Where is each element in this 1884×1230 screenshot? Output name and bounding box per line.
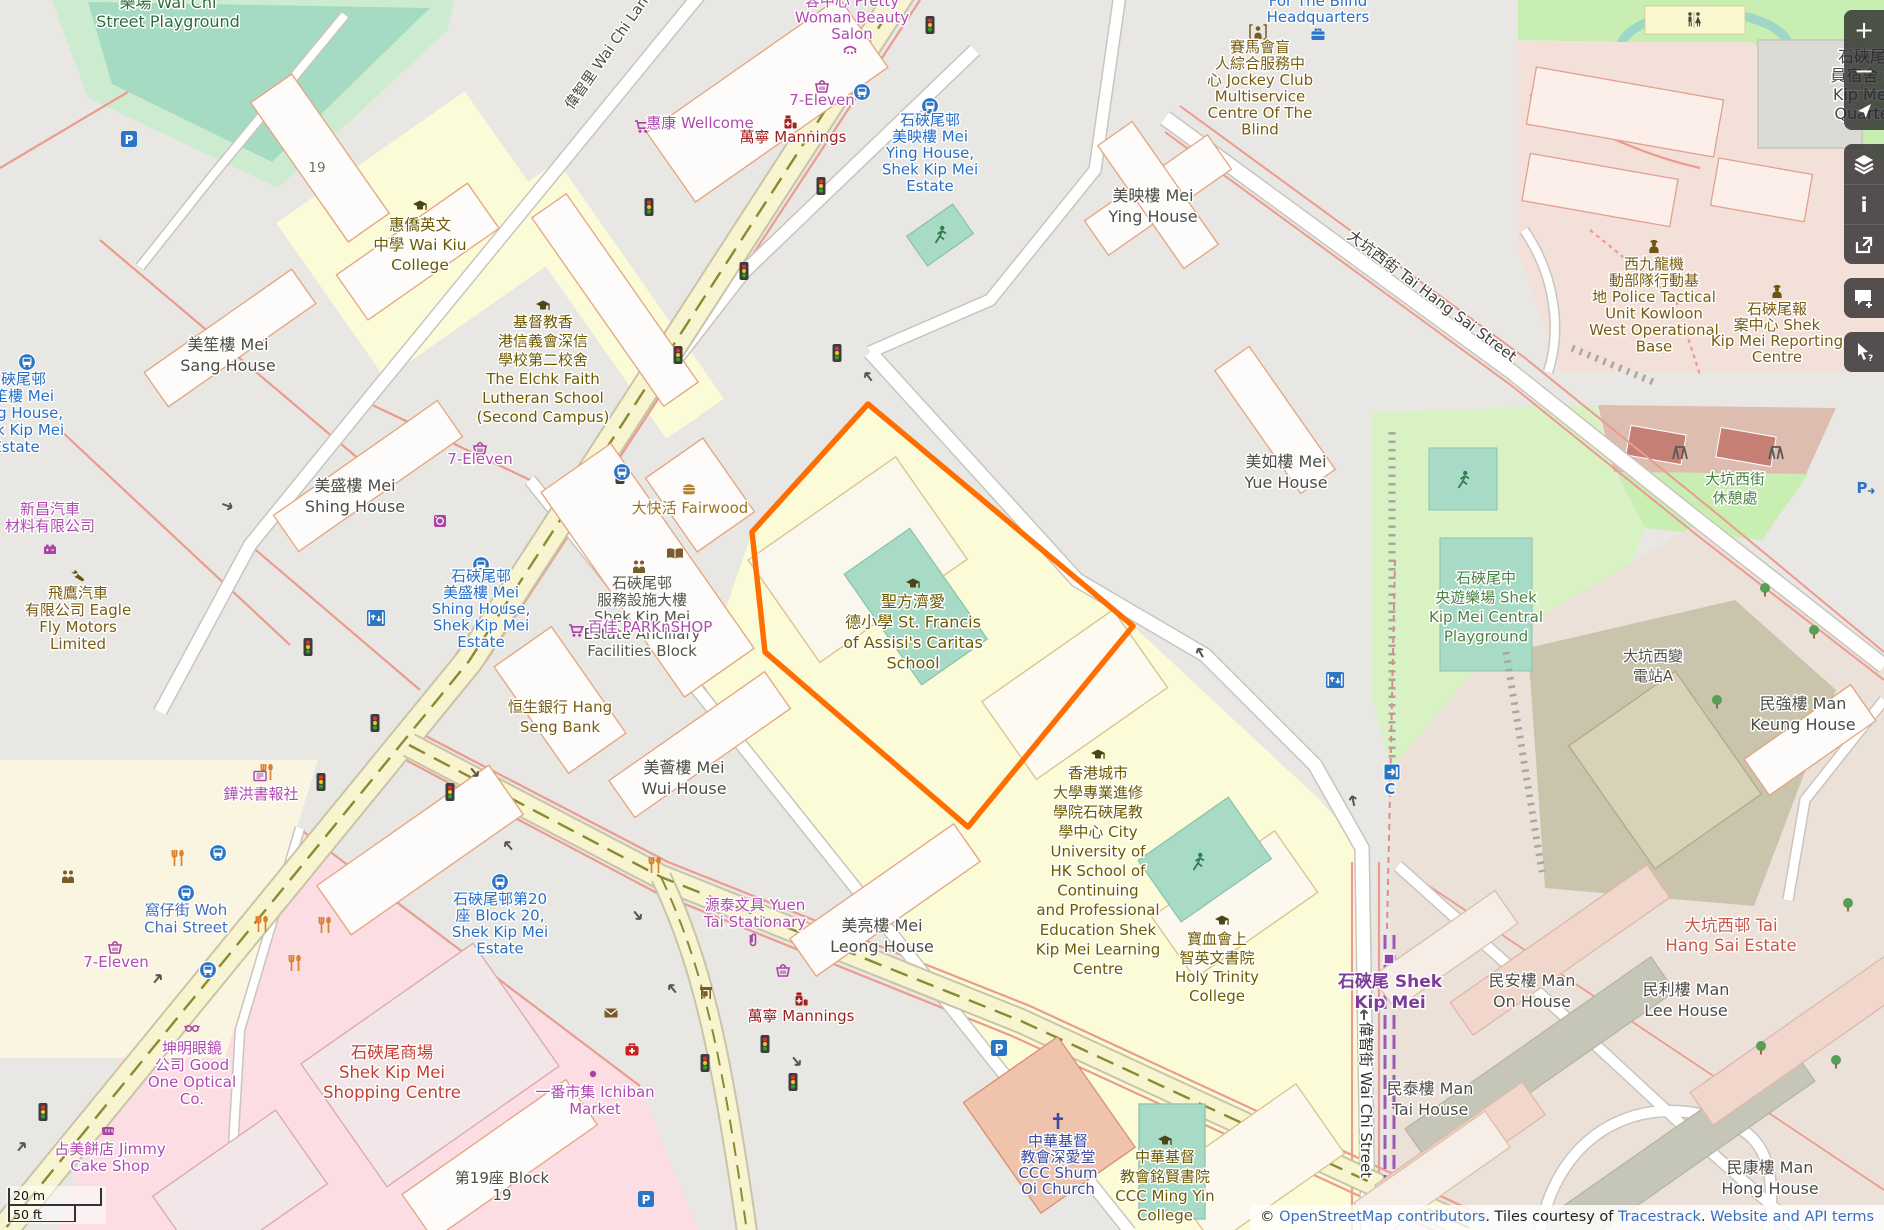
traffic-light-icon [833,344,842,362]
share-button[interactable] [1844,224,1884,264]
query-cursor-icon: ? [1853,341,1875,363]
traffic-light-icon [674,346,683,364]
zoom-out-button[interactable]: − [1844,50,1884,90]
attribution-sep1: . Tiles courtesy of [1485,1209,1618,1225]
traffic-light-icon [740,262,749,280]
bus-stop-icon [200,962,217,979]
comment-plus-icon [1853,287,1875,309]
attribution-sep2: . [1701,1209,1710,1225]
entrance-icon [1384,764,1400,780]
map-label: 7-Eleven [789,91,854,109]
map-label: 鏵洪書報社 [223,785,298,803]
query-control-group: ? [1844,332,1884,372]
map-label: 萬寧 Mannings [748,1007,855,1025]
map-label: 大坑西街休憩處 [1705,470,1765,507]
traffic-light-icon [701,1054,710,1072]
scale-bar: 20 m 50 ft [6,1186,106,1224]
traffic-light-icon [789,1073,798,1091]
traffic-light-icon [446,783,455,801]
elevator-icon [1326,672,1344,688]
traffic-light-icon [39,1103,48,1121]
map-label: 7-Eleven [83,953,148,971]
layers-button[interactable] [1844,144,1884,184]
map-label: 百佳 PARKnSHOP [588,618,713,636]
locate-button[interactable] [1844,90,1884,130]
bus-stop-icon [492,874,509,891]
bread-icon [102,1127,114,1135]
map-canvas[interactable]: P P [0,0,1884,1230]
scale-imperial: 50 ft [8,1204,76,1222]
note-control-group [1844,278,1884,318]
map-label: 源泰文具 YuenTai Stationary [703,896,806,931]
map-label: 中華基督教會深愛堂CCC ShumOi Church [1018,1132,1097,1198]
add-note-button[interactable] [1844,278,1884,318]
bus-stop-icon [854,84,871,101]
map-label: 惠康 Wellcome [646,114,754,132]
navigation-arrow-icon [1854,101,1874,121]
query-features-button[interactable]: ? [1844,332,1884,372]
map-label: 19 [308,160,325,176]
terms-link[interactable]: Website and API terms [1710,1209,1874,1225]
traffic-light-icon [371,714,380,732]
map-label: C [1384,780,1395,798]
svg-text:?: ? [1868,354,1873,363]
traffic-light-icon [317,773,326,791]
traffic-light-icon [761,1035,770,1053]
burger-icon [683,484,695,494]
map-label: 占美餅店 JimmyCake Shop [54,1140,166,1175]
map-label: 7-Eleven [447,450,512,468]
map-label: 大坑西邨 TaiHang Sai Estate [1665,916,1796,955]
traffic-light-icon [926,16,935,34]
bus-stop-icon [210,845,227,862]
station-square-icon [1384,954,1394,964]
zoom-control-group: + − [1844,10,1884,130]
map-label: 偉智街 Wai Chi Street [1357,1022,1375,1178]
map-label: 大快活 Fairwood [632,499,749,517]
zoom-in-button[interactable]: + [1844,10,1884,50]
map-controls: + − i ? [1842,10,1884,386]
laundry-icon [434,515,446,527]
map-label: For The BlindHeadquarters [1267,0,1370,26]
map-label: 萬寧 Mannings [740,128,847,146]
attribution-bar: © OpenStreetMap contributors. Tiles cour… [1250,1205,1884,1230]
attribution-prefix: © [1260,1209,1279,1225]
osm-contributors-link[interactable]: OpenStreetMap contributors [1279,1209,1485,1225]
tracestrack-link[interactable]: Tracestrack [1618,1209,1701,1225]
bus-stop-icon [614,464,631,481]
info-button[interactable]: i [1844,184,1884,224]
bus-stop-icon [19,354,36,371]
newsagent-icon [254,772,266,781]
map-label: 窩仔街 WohChai Street [144,901,228,937]
parking-icon [121,131,137,147]
traffic-light-icon [645,198,654,216]
parking-icon [638,1191,654,1207]
elevator-icon [367,610,385,626]
traffic-light-icon [817,177,826,195]
layers-icon [1853,153,1875,175]
traffic-light-icon [304,638,313,656]
parking-icon [991,1040,1007,1056]
layers-control-group: i [1844,144,1884,264]
dot-icon [590,1071,596,1077]
share-icon [1854,235,1874,255]
mail-icon [605,1009,618,1018]
bus-stop-icon [178,885,195,902]
map-label: 香港城市大學專業進修學院石硤尾教學中心 CityUniversity ofHK … [1036,764,1161,978]
